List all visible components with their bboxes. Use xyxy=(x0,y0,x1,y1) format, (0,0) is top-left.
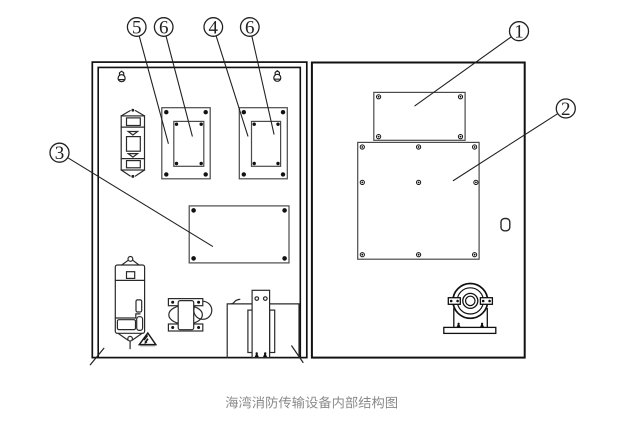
svg-text:3: 3 xyxy=(55,143,65,164)
svg-text:6: 6 xyxy=(245,18,255,39)
svg-text:4: 4 xyxy=(209,18,219,39)
svg-text:6: 6 xyxy=(159,18,169,39)
svg-text:1: 1 xyxy=(514,22,524,43)
svg-text:5: 5 xyxy=(132,18,142,39)
svg-text:2: 2 xyxy=(561,99,571,120)
